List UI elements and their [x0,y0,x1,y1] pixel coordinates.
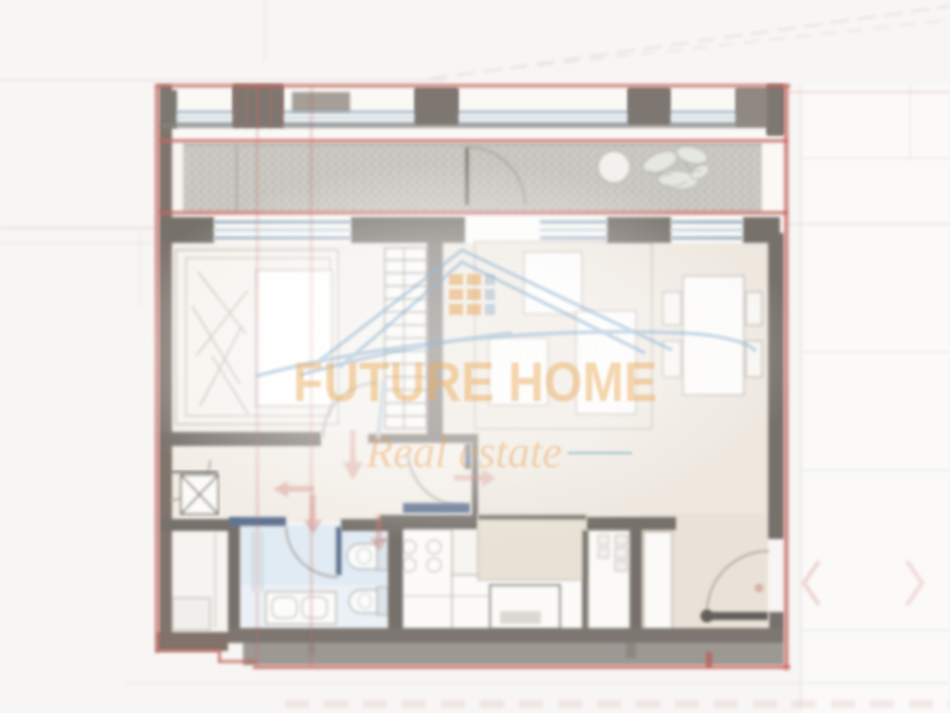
svg-text:FUTURE HOME: FUTURE HOME [293,350,657,413]
svg-text:Real estate: Real estate [365,427,562,477]
